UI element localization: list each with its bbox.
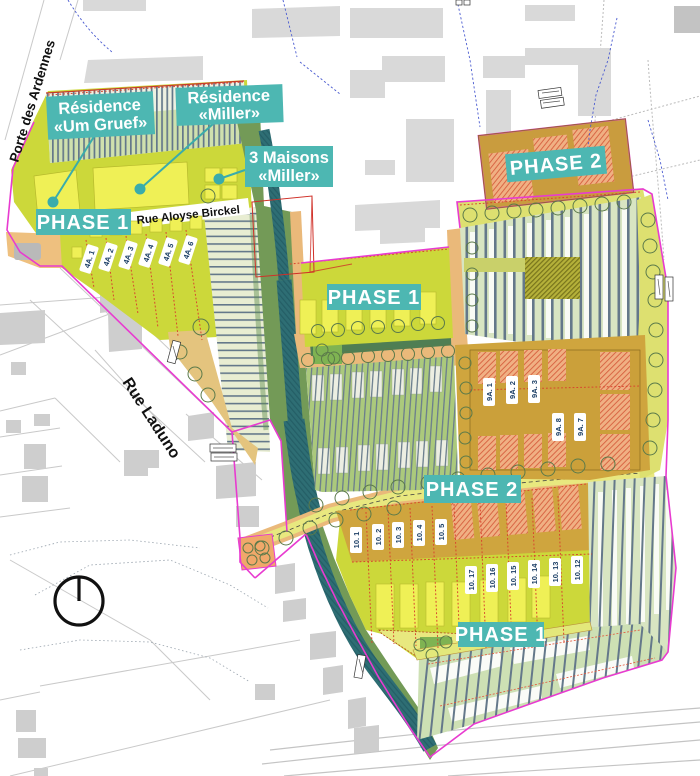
svg-text:10. 1: 10. 1 — [352, 532, 361, 549]
svg-text:«Miller»: «Miller» — [258, 167, 319, 185]
svg-text:9A. 8: 9A. 8 — [554, 418, 563, 436]
svg-text:PHASE 1: PHASE 1 — [328, 287, 421, 309]
svg-text:10. 2: 10. 2 — [374, 529, 383, 546]
svg-text:10. 17: 10. 17 — [467, 570, 476, 591]
svg-text:10. 12: 10. 12 — [573, 560, 582, 581]
svg-text:10. 5: 10. 5 — [437, 524, 446, 541]
svg-text:3 Maisons: 3 Maisons — [249, 149, 329, 167]
svg-text:9A. 2: 9A. 2 — [508, 381, 517, 399]
svg-text:«Miller»: «Miller» — [198, 104, 260, 124]
svg-text:10. 16: 10. 16 — [488, 568, 497, 589]
svg-text:10. 3: 10. 3 — [394, 527, 403, 544]
svg-text:9A. 3: 9A. 3 — [530, 380, 539, 398]
svg-text:10. 15: 10. 15 — [509, 566, 518, 587]
svg-text:10. 4: 10. 4 — [415, 524, 424, 542]
svg-text:10. 13: 10. 13 — [551, 562, 560, 583]
svg-text:9A. 7: 9A. 7 — [576, 418, 585, 436]
svg-text:PHASE 1: PHASE 1 — [37, 212, 130, 234]
svg-text:PHASE 1: PHASE 1 — [455, 624, 548, 646]
svg-text:PHASE 2: PHASE 2 — [426, 479, 519, 501]
svg-text:9A. 1: 9A. 1 — [485, 383, 494, 401]
svg-text:10. 14: 10. 14 — [530, 563, 539, 585]
